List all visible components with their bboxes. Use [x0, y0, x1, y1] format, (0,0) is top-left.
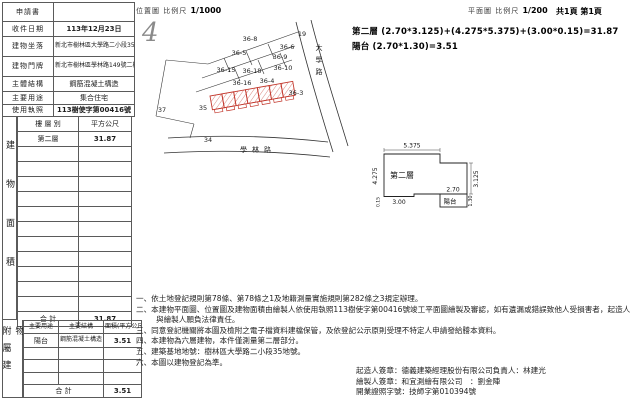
- dim-height-left: 4.275: [372, 167, 379, 184]
- license-number: 開業證照字號：技師字第010394號: [356, 387, 546, 398]
- floor-plan-scale-label: 平面圖 比例尺: [468, 7, 519, 15]
- table-row: 主體結構 鋼筋混凝土構造: [3, 77, 135, 92]
- table-row-empty: [18, 177, 132, 192]
- annex-side-label: 附屬建物: [2, 320, 23, 398]
- table-row: 第二層 31.87: [18, 132, 132, 147]
- table-row: 主要用途 集合住宅: [3, 92, 135, 105]
- field-label-receipt-date: 收件日期: [3, 22, 54, 37]
- annex-total-cell: 3.51: [104, 384, 142, 397]
- table-row-empty: [18, 207, 132, 222]
- page-indicator-value: 共1頁 第1頁: [556, 7, 602, 16]
- floor-area-cell: 31.87: [79, 132, 132, 147]
- field-value-receipt-date: 113年12月23日: [54, 22, 135, 37]
- lot-label: 37: [158, 106, 166, 114]
- field-value-structure: 鋼筋混凝土構造: [54, 77, 135, 92]
- field-label-building-site: 建物坐落: [3, 37, 54, 57]
- building-area-section: 建物面積 樓 層 別 平方公尺 第二層 31.87 合 計: [2, 116, 130, 320]
- formula-balcony: 陽台 (2.70*1.30)=3.51: [352, 40, 619, 55]
- table-row: 建物門牌 新北市樹林區學林路149號二樓: [3, 57, 135, 77]
- table-row: 陽台 鋼筋混凝土構造 3.51: [24, 334, 142, 348]
- field-label-application: 申請書: [3, 3, 54, 22]
- table-row-empty: [18, 222, 132, 237]
- annex-total-label-cell: 合 計: [24, 384, 104, 397]
- road-label-daxue: 大學路: [314, 44, 324, 80]
- col-header-structure: 主要結構: [59, 321, 104, 334]
- table-row: 申請書: [3, 3, 135, 22]
- balcony-label: 陽台: [444, 197, 457, 206]
- floor-plan-diagram: 5.375 4.275 3.125 2.70 3.00 0.15 1.30 第二…: [370, 142, 500, 244]
- dim-balcony-height: 1.30: [468, 195, 474, 206]
- annex-building-section: 附屬建物 主要用途 主要結構 面積(平方公尺) 陽台 鋼筋混凝土構造 3.51 …: [2, 320, 130, 398]
- lot-label: 35: [199, 104, 207, 112]
- floor-name-cell: 第二層: [18, 132, 79, 147]
- building-info-table: 申請書 收件日期 113年12月23日 建物坐落 新北市樹林區大學路二小段35地…: [2, 2, 135, 117]
- col-header-use: 主要用途: [24, 321, 59, 334]
- field-value-address: 新北市樹林區學林路149號二樓: [54, 57, 135, 77]
- notes-list: 一、依土地登記規則第78條、第78條之1及地籍測量實施規則第282條之3規定辦理…: [136, 294, 636, 368]
- dim-width-top: 5.375: [403, 143, 420, 150]
- dim-width-inner: 2.70: [446, 187, 460, 194]
- location-map-scale-label: 位置圖 比例尺: [136, 7, 187, 15]
- table-row-empty: [24, 348, 142, 360]
- col-header-area: 平方公尺: [79, 117, 132, 132]
- note-item: 一、依土地登記規則第78條、第78條之1及地籍測量實施規則第282條之3規定辦理…: [136, 294, 636, 305]
- table-row-empty: [18, 252, 132, 267]
- table-header-row: 樓 層 別 平方公尺: [18, 117, 132, 132]
- table-row-empty: [18, 297, 132, 312]
- field-label-structure: 主體結構: [3, 77, 54, 92]
- drafter-signature: 繪製人簽章：和宜測繪有限公司 ：劉金陣: [356, 377, 546, 388]
- dim-width-bottom: 3.00: [392, 199, 406, 206]
- lot-label: 19: [298, 30, 306, 38]
- road-label-xuelin: 學林路: [240, 145, 276, 155]
- floor-label: 第二層: [390, 170, 414, 180]
- table-row: 建物坐落 新北市樹林區大學路二小段35地號: [3, 37, 135, 57]
- floor-plan-scale-value: 1/200: [522, 6, 547, 15]
- lot-label: 36-8: [243, 35, 258, 43]
- annex-use-cell: 陽台: [24, 334, 59, 348]
- side-label-text: 附屬建物: [0, 326, 26, 391]
- table-row-empty: [18, 237, 132, 252]
- area-formula: 第二層 (2.70*3.125)+(4.275*5.375)+(3.00*0.1…: [352, 25, 619, 55]
- field-value-application: [54, 3, 135, 22]
- field-label-main-use: 主要用途: [3, 92, 54, 105]
- lot-label: 36-10: [274, 64, 293, 72]
- builder-signature: 起造人簽章：德義建築經理股份有限公司負責人：林建光: [356, 366, 546, 377]
- note-item: 二、本建物平面圖、位置圖及建物面積由繪製人依使用執照113樹使字第00416號竣…: [136, 305, 636, 326]
- page-indicator: 共1頁 第1頁: [556, 6, 602, 17]
- field-value-use-license: 113樹使字第00416號: [54, 105, 135, 117]
- table-row-empty: [18, 147, 132, 162]
- table-row-empty: [18, 282, 132, 297]
- lot-label: 34: [204, 136, 212, 144]
- annex-area-table: 主要用途 主要結構 面積(平方公尺) 陽台 鋼筋混凝土構造 3.51 合 計 3…: [23, 320, 142, 398]
- lot-label: 36-6: [280, 43, 295, 51]
- table-row-empty: [24, 360, 142, 372]
- road-daxue-edge: [296, 22, 333, 152]
- location-map-scale-value: 1/1000: [190, 6, 221, 15]
- road-daxue-edge: [311, 20, 348, 146]
- formula-floor: 第二層 (2.70*3.125)+(4.275*5.375)+(3.00*0.1…: [352, 25, 619, 40]
- field-label-address: 建物門牌: [3, 57, 54, 77]
- dim-height-right: 3.125: [473, 170, 480, 187]
- location-map-scale: 位置圖 比例尺 1/1000: [136, 6, 221, 16]
- lot-label: 36-9: [273, 53, 288, 61]
- lot-label: 36-4: [260, 77, 275, 85]
- side-label-text: 建物面積: [3, 140, 16, 296]
- building-area-side-label: 建物面積: [2, 116, 17, 320]
- subject-building-footprint: [210, 81, 296, 113]
- table-total-row: 合 計 3.51: [24, 384, 142, 397]
- field-value-main-use: 集合住宅: [54, 92, 135, 105]
- note-item: 三、同意登記機關將本圖及檢附之電子檔資料建檔保管，及依登記公示原則受理不特定人申…: [136, 326, 636, 337]
- signature-block: 起造人簽章：德義建築經理股份有限公司負責人：林建光 繪製人簽章：和宜測繪有限公司…: [356, 366, 546, 398]
- table-header-row: 主要用途 主要結構 面積(平方公尺): [24, 321, 142, 334]
- annex-structure-cell: 鋼筋混凝土構造: [59, 334, 104, 348]
- table-row-empty: [18, 162, 132, 177]
- dimension-labels: 5.375 4.275 3.125 2.70 3.00 0.15 1.30: [372, 143, 480, 208]
- lot-label: 36-18: [243, 67, 262, 75]
- lot-label: 36-5: [232, 49, 247, 57]
- survey-form-sheet: 位置圖 比例尺 1/1000 平面圖 比例尺 1/200 共1頁 第1頁 4 申…: [0, 0, 640, 400]
- field-label-use-license: 使用執照: [3, 105, 54, 117]
- note-item: 四、本建物為六層建物，本件僅測量第二層部分。: [136, 336, 636, 347]
- note-item: 五、建築基地地號：樹林區大學路二小段35地號。: [136, 347, 636, 358]
- field-value-building-site: 新北市樹林區大學路二小段35地號: [54, 37, 135, 57]
- table-row-empty: [18, 192, 132, 207]
- lot-label: 36-3: [289, 89, 304, 97]
- table-row: 收件日期 113年12月23日: [3, 22, 135, 37]
- road-xuelin-edge: [168, 136, 328, 142]
- table-row: 使用執照 113樹使字第00416號: [3, 105, 135, 117]
- floor-plan-scale: 平面圖 比例尺 1/200: [468, 6, 548, 16]
- lot-label: 36-16: [233, 79, 252, 87]
- table-row-empty: [24, 372, 142, 384]
- col-header-floor: 樓 層 別: [18, 117, 79, 132]
- table-row-empty: [18, 267, 132, 282]
- dim-strip: 0.15: [376, 197, 382, 207]
- lot-label: 36-15: [217, 66, 236, 74]
- floor-area-table: 樓 層 別 平方公尺 第二層 31.87 合 計 31.87: [17, 116, 132, 327]
